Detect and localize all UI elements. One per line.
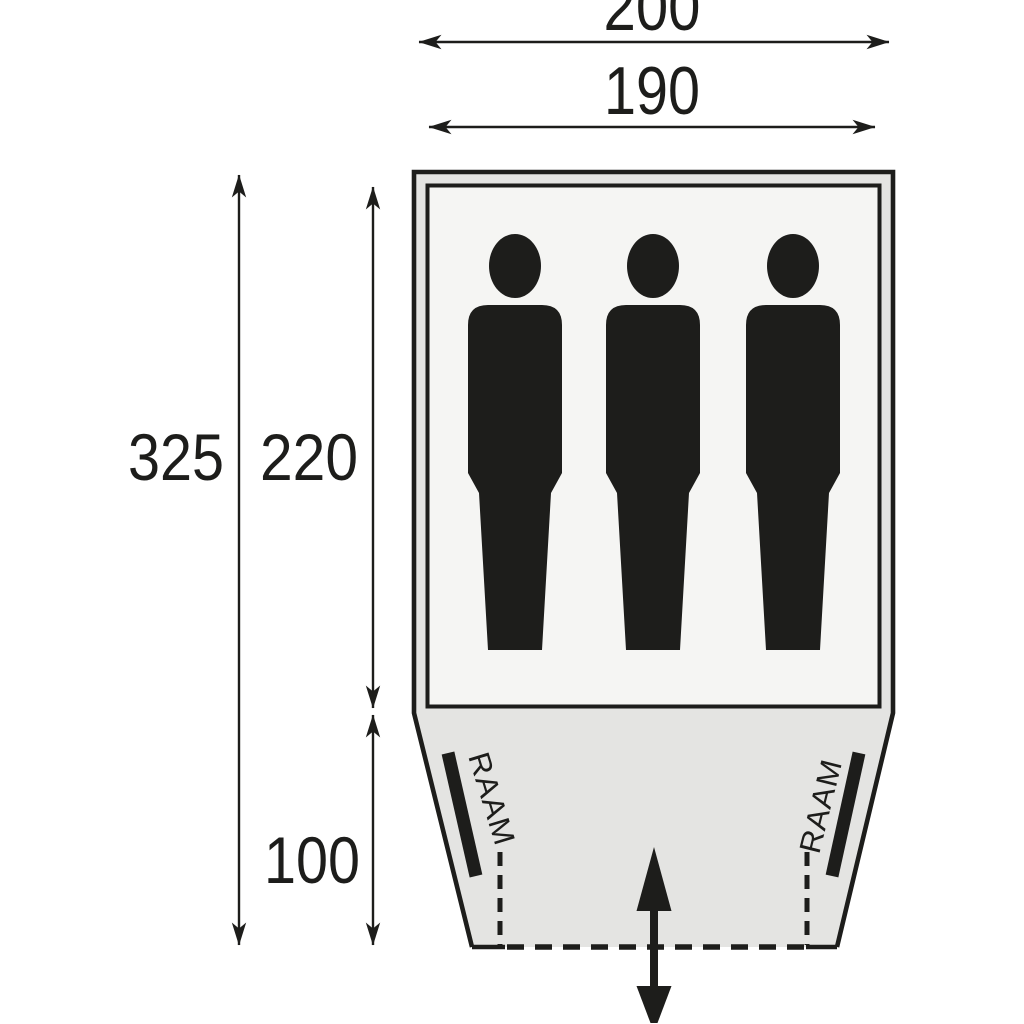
dim-label-inner-width: 190 (604, 53, 700, 129)
tent-floorplan-diagram: RAAM RAAM 200 190 325 220 100 (0, 0, 1024, 1024)
dim-label-outer-width: 200 (604, 0, 701, 45)
dim-label-sleeping-depth: 220 (260, 420, 358, 494)
entrance-arrow-down-head (637, 986, 672, 1023)
dim-label-porch-depth: 100 (264, 823, 360, 897)
tent-floorplan-page: RAAM RAAM 200 190 325 220 100 (0, 0, 1024, 1024)
entrance-arrow-shaft (650, 906, 658, 990)
dim-label-total-depth: 325 (128, 420, 224, 494)
